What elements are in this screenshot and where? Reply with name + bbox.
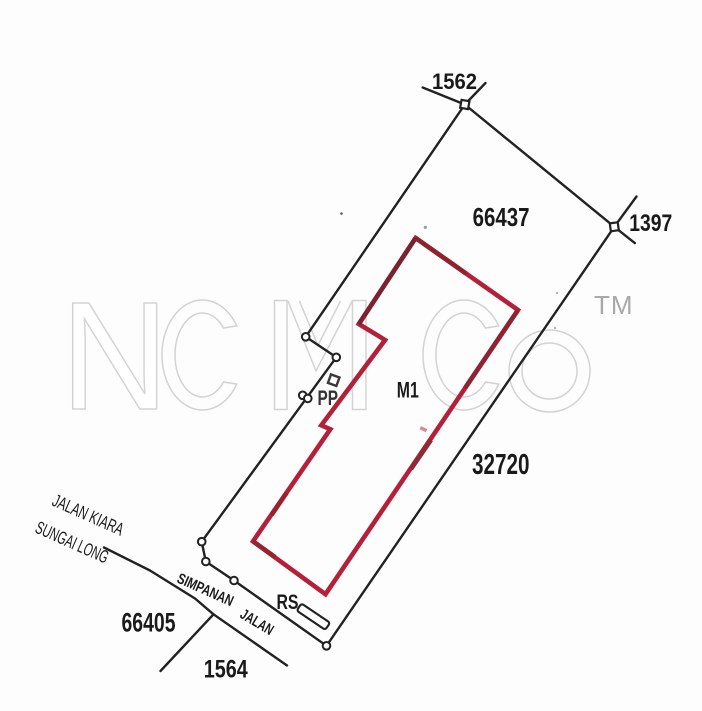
svg-text:1564: 1564 <box>204 656 248 684</box>
svg-text:M1: M1 <box>397 378 419 403</box>
svg-text:66405: 66405 <box>122 607 176 637</box>
svg-text:32720: 32720 <box>472 449 530 481</box>
svg-text:N: N <box>60 270 168 442</box>
svg-text:1562: 1562 <box>432 69 477 94</box>
svg-text:TM: TM <box>594 290 634 320</box>
svg-text:PP: PP <box>318 386 339 410</box>
svg-text:1397: 1397 <box>629 210 672 237</box>
svg-text:RS: RS <box>277 590 299 614</box>
svg-text:66437: 66437 <box>473 202 530 232</box>
